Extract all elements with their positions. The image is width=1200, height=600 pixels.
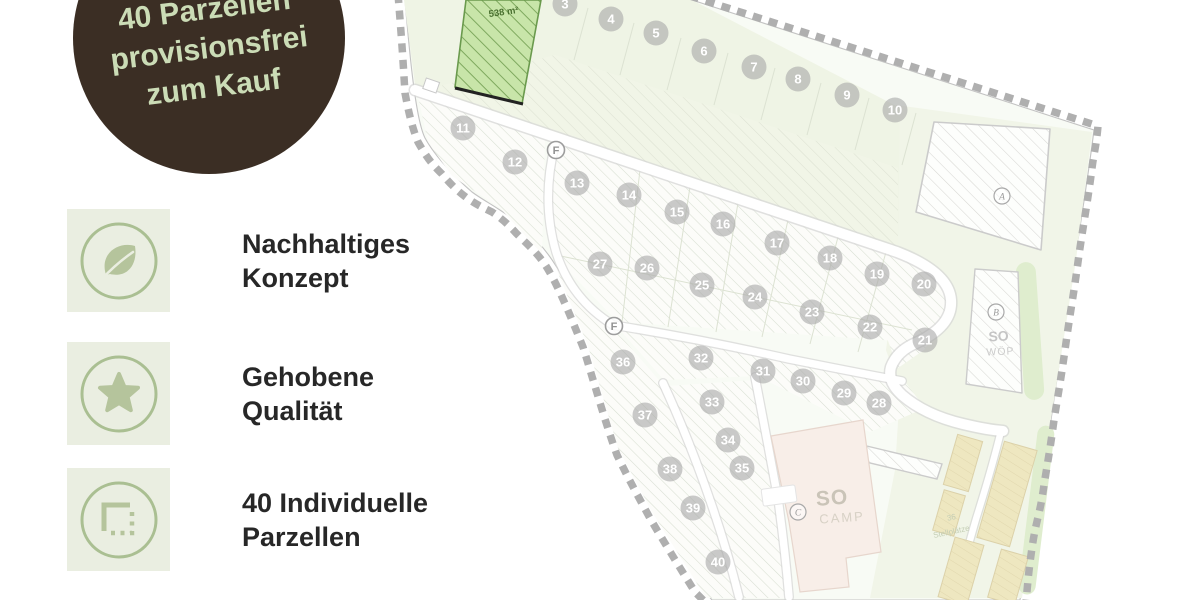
parcel-marker-6: 6 — [692, 39, 717, 64]
feature-icon-tile — [67, 342, 170, 445]
svg-text:13: 13 — [570, 176, 584, 191]
parcel-marker-31: 31 — [751, 359, 776, 384]
parcel-marker-18: 18 — [818, 246, 843, 271]
svg-text:F: F — [611, 321, 618, 333]
parcel-icon — [74, 475, 164, 565]
parcel-marker-5: 5 — [644, 21, 669, 46]
svg-text:12: 12 — [508, 155, 522, 170]
area-marker-B: B — [988, 304, 1004, 320]
parcel-marker-33: 33 — [700, 390, 725, 415]
svg-text:39: 39 — [686, 501, 700, 516]
parcel-marker-16: 16 — [711, 212, 736, 237]
area-marker-C: C — [790, 504, 806, 520]
svg-text:5: 5 — [652, 26, 659, 41]
parcel-marker-20: 20 — [912, 272, 937, 297]
svg-text:15: 15 — [670, 205, 684, 220]
parcel-marker-35: 35 — [730, 456, 755, 481]
feature-label: 40 Individuelle Parzellen — [242, 486, 428, 554]
parcel-marker-19: 19 — [865, 262, 890, 287]
feature-sustainability: Nachhaltiges Konzept — [67, 209, 410, 312]
feature-label-line1: 40 Individuelle — [242, 486, 428, 520]
svg-text:8: 8 — [794, 72, 801, 87]
leaf-icon — [74, 216, 164, 306]
svg-text:38: 38 — [663, 462, 677, 477]
parcel-marker-38: 38 — [658, 457, 683, 482]
parcel-marker-39: 39 — [681, 496, 706, 521]
parcel-marker-14: 14 — [617, 183, 642, 208]
area-marker-A: A — [994, 188, 1010, 204]
parcel-marker-13: 13 — [565, 171, 590, 196]
parcel-marker-30: 30 — [791, 369, 816, 394]
parcel-marker-10: 10 — [883, 98, 908, 123]
parcel-marker-21: 21 — [913, 328, 938, 353]
marketing-graphic: SO CAMP SO WÖP 36 Stellplätze 538 m² — [0, 0, 1200, 600]
svg-text:21: 21 — [918, 333, 932, 348]
svg-text:7: 7 — [750, 60, 757, 75]
svg-text:6: 6 — [700, 44, 707, 59]
parcel-marker-17: 17 — [765, 231, 790, 256]
svg-text:37: 37 — [638, 408, 652, 423]
parcel-marker-7: 7 — [742, 55, 767, 80]
feature-quality: Gehobene Qualität — [67, 342, 374, 445]
parcel-marker-24: 24 — [743, 285, 768, 310]
parcel-marker-23: 23 — [800, 300, 825, 325]
parcel-marker-11: 11 — [451, 116, 476, 141]
svg-text:19: 19 — [870, 267, 884, 282]
feature-label: Nachhaltiges Konzept — [242, 227, 410, 295]
svg-text:23: 23 — [805, 305, 819, 320]
parcel-marker-26: 26 — [635, 256, 660, 281]
feature-icon-tile — [67, 209, 170, 312]
parcel-marker-36: 36 — [611, 350, 636, 375]
svg-text:35: 35 — [735, 461, 749, 476]
svg-text:B: B — [993, 309, 999, 319]
svg-text:25: 25 — [695, 278, 709, 293]
svg-text:14: 14 — [622, 188, 637, 203]
parcel-marker-37: 37 — [633, 403, 658, 428]
parcel-marker-28: 28 — [867, 391, 892, 416]
feature-label-line1: Nachhaltiges — [242, 227, 410, 261]
parcel-marker-40: 40 — [706, 550, 731, 575]
svg-text:30: 30 — [796, 374, 810, 389]
svg-text:F: F — [553, 145, 560, 157]
road-marker-F: F — [548, 142, 565, 159]
parcel-marker-15: 15 — [665, 200, 690, 225]
feature-label-line2: Parzellen — [242, 520, 428, 554]
feature-parcels: 40 Individuelle Parzellen — [67, 468, 428, 571]
svg-text:32: 32 — [694, 351, 708, 366]
svg-text:11: 11 — [456, 121, 470, 136]
svg-text:36: 36 — [616, 355, 630, 370]
svg-text:40: 40 — [711, 555, 725, 570]
feature-icon-tile — [67, 468, 170, 571]
feature-label-line2: Qualität — [242, 394, 374, 428]
svg-text:31: 31 — [756, 364, 770, 379]
feature-label-line1: Gehobene — [242, 360, 374, 394]
svg-text:4: 4 — [607, 12, 615, 27]
parcel-marker-27: 27 — [588, 252, 613, 277]
svg-text:29: 29 — [837, 386, 851, 401]
parcel-marker-25: 25 — [690, 273, 715, 298]
feature-label-line2: Konzept — [242, 261, 410, 295]
parcel-marker-4: 4 — [599, 7, 624, 32]
svg-text:20: 20 — [917, 277, 931, 292]
parcel-marker-9: 9 — [835, 83, 860, 108]
svg-text:34: 34 — [721, 433, 736, 448]
svg-text:24: 24 — [748, 290, 763, 305]
star-icon — [74, 349, 164, 439]
svg-text:26: 26 — [640, 261, 654, 276]
svg-text:10: 10 — [888, 103, 902, 118]
svg-text:3: 3 — [561, 0, 568, 12]
svg-text:33: 33 — [705, 395, 719, 410]
road-marker-F: F — [606, 318, 623, 335]
feature-label: Gehobene Qualität — [242, 360, 374, 428]
svg-text:22: 22 — [863, 320, 877, 335]
parcel-marker-8: 8 — [786, 67, 811, 92]
svg-text:16: 16 — [716, 217, 730, 232]
svg-text:27: 27 — [593, 257, 607, 272]
parcel-marker-32: 32 — [689, 346, 714, 371]
promo-badge-text: 40 Parzellen provisionsfrei zum Kauf — [67, 0, 351, 123]
parcel-marker-22: 22 — [858, 315, 883, 340]
svg-text:18: 18 — [823, 251, 837, 266]
parcel-marker-34: 34 — [716, 428, 741, 453]
parcel-marker-12: 12 — [503, 150, 528, 175]
svg-text:28: 28 — [872, 396, 886, 411]
parcel-marker-29: 29 — [832, 381, 857, 406]
svg-text:17: 17 — [770, 236, 784, 251]
svg-text:C: C — [795, 509, 802, 519]
svg-text:9: 9 — [843, 88, 850, 103]
svg-text:A: A — [998, 193, 1005, 203]
